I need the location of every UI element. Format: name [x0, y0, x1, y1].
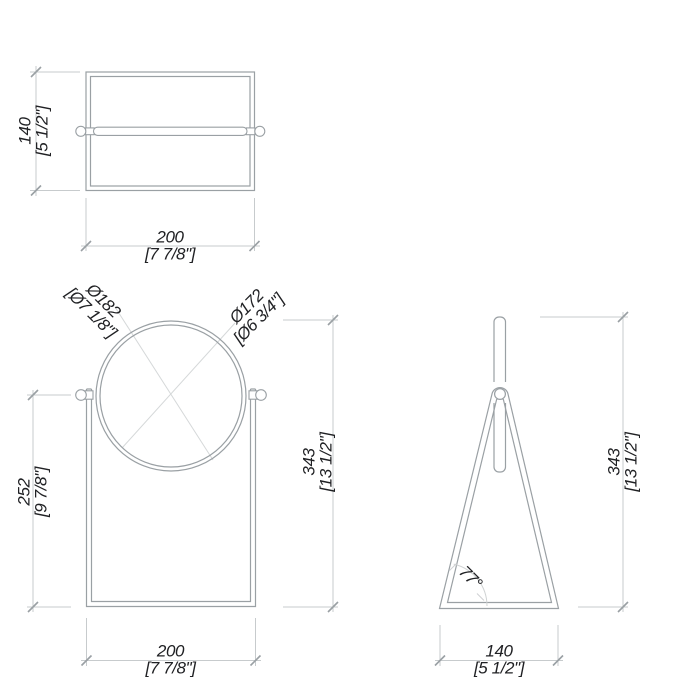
- dim-top-width-in: [7 7/8"]: [145, 246, 195, 263]
- drawing-linework: [0, 0, 700, 700]
- dim-side-depth: 140 [5 1/2"]: [474, 644, 524, 677]
- dim-side-total-in: [13 1/2"]: [623, 432, 640, 491]
- front-frame-outer: [87, 389, 256, 607]
- top-view-pivot-tab-right: [246, 128, 255, 135]
- top-view-pivot-tab-left: [86, 128, 95, 135]
- dim-front-pivot-height: 252 [9 7/8"]: [17, 467, 50, 517]
- front-view: [76, 307, 267, 607]
- front-knob-left: [76, 390, 87, 401]
- dim-front-total-in: [13 1/2"]: [318, 432, 335, 491]
- mirror-inner-circle: [100, 325, 242, 467]
- dimension-lines: [27, 66, 628, 666]
- top-view: [76, 72, 265, 191]
- top-view-knob-left: [76, 126, 86, 136]
- dim-side-depth-in: [5 1/2"]: [474, 660, 524, 677]
- front-frame-inner: [92, 389, 251, 602]
- dim-side-total-height: 343 [13 1/2"]: [607, 432, 640, 491]
- front-knob-right: [256, 390, 267, 401]
- dim-front-width-in: [7 7/8"]: [145, 660, 195, 677]
- side-pivot-knob: [495, 389, 506, 400]
- dim-top-height: 140 [5 1/2"]: [18, 106, 51, 156]
- dim-front-total-height: 343 [13 1/2"]: [302, 432, 335, 491]
- side-view: [440, 317, 559, 609]
- dimension-ticks: [28, 67, 628, 666]
- top-view-knob-right: [255, 126, 265, 136]
- dim-top-width: 200 [7 7/8"]: [145, 230, 195, 263]
- mirror-outer-circle: [96, 321, 246, 471]
- leader-inner-diameter: [122, 323, 235, 448]
- technical-drawing-canvas: 140 [5 1/2"] 200 [7 7/8"] Ø182 [Ø7 1/8"]…: [0, 0, 700, 700]
- dim-top-height-in: [5 1/2"]: [34, 106, 51, 156]
- dim-front-width: 200 [7 7/8"]: [145, 644, 195, 677]
- top-view-mirror-bar: [94, 127, 248, 135]
- dim-front-pivot-in: [9 7/8"]: [33, 467, 50, 517]
